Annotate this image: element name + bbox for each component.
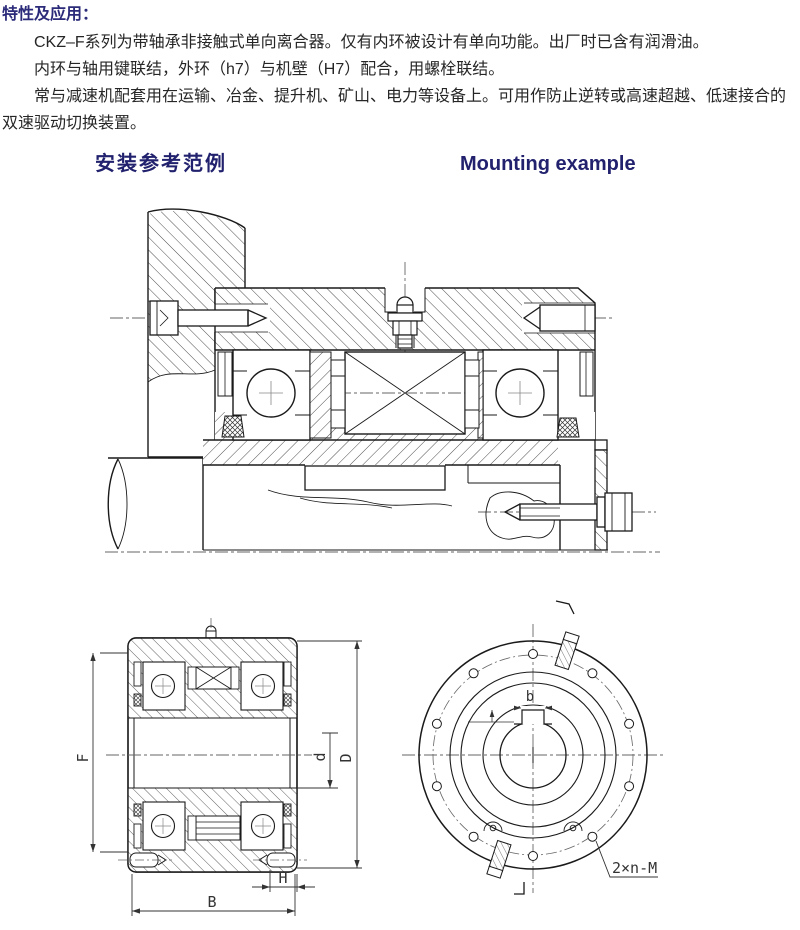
intro-section: 特性及应用： CKZ–F系列为带轴承非接触式单向离合器。仅有内环被设计有单向功能… [2, 4, 798, 137]
intro-paragraph-3: 常与减速机配套用在运输、冶金、提升机、矿山、电力等设备上。可用作防止逆转或高速超… [2, 83, 798, 137]
intro-title: 特性及应用： [2, 4, 798, 26]
dim-label-F: F [74, 753, 92, 762]
shaft-key [268, 466, 452, 508]
intro-paragraph-1: CKZ–F系列为带轴承非接触式单向离合器。仅有内环被设计有单向功能。出厂时已含有… [2, 29, 798, 56]
mounting-example-drawing [95, 190, 670, 570]
bearing-row [233, 350, 558, 440]
section-body [106, 618, 312, 872]
section-view-drawing: F D d B H [55, 595, 405, 930]
intro-paragraph-2: 内环与轴用键联结，外环（h7）与机壁（H7）配合，用螺栓联结。 [2, 56, 798, 83]
dim-label-B: B [207, 893, 216, 911]
heading-zh: 安装参考范例 [95, 151, 227, 177]
front-view-drawing: b 2×n-M [395, 580, 685, 915]
keyway [468, 706, 552, 724]
keyway-width-label: b [526, 689, 534, 705]
dim-label-D: D [337, 753, 355, 762]
dim-label-d: d [311, 752, 329, 761]
bolt-spec-label: 2×n-M [612, 859, 657, 877]
heading-en: Mounting example [460, 151, 636, 177]
dim-label-H: H [278, 869, 287, 887]
